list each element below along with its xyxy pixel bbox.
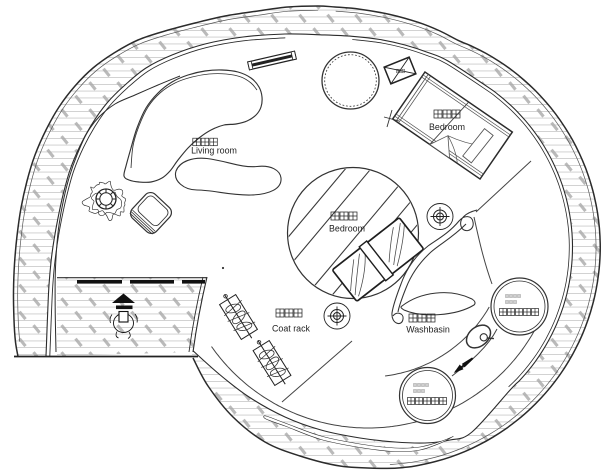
svg-text:Washbasin: Washbasin [406,325,450,335]
svg-text:Living room: Living room [191,146,237,156]
svg-text:Bedroom: Bedroom [329,224,365,234]
svg-text:Bedroom: Bedroom [429,122,465,132]
svg-text:Coat rack: Coat rack [272,324,311,334]
